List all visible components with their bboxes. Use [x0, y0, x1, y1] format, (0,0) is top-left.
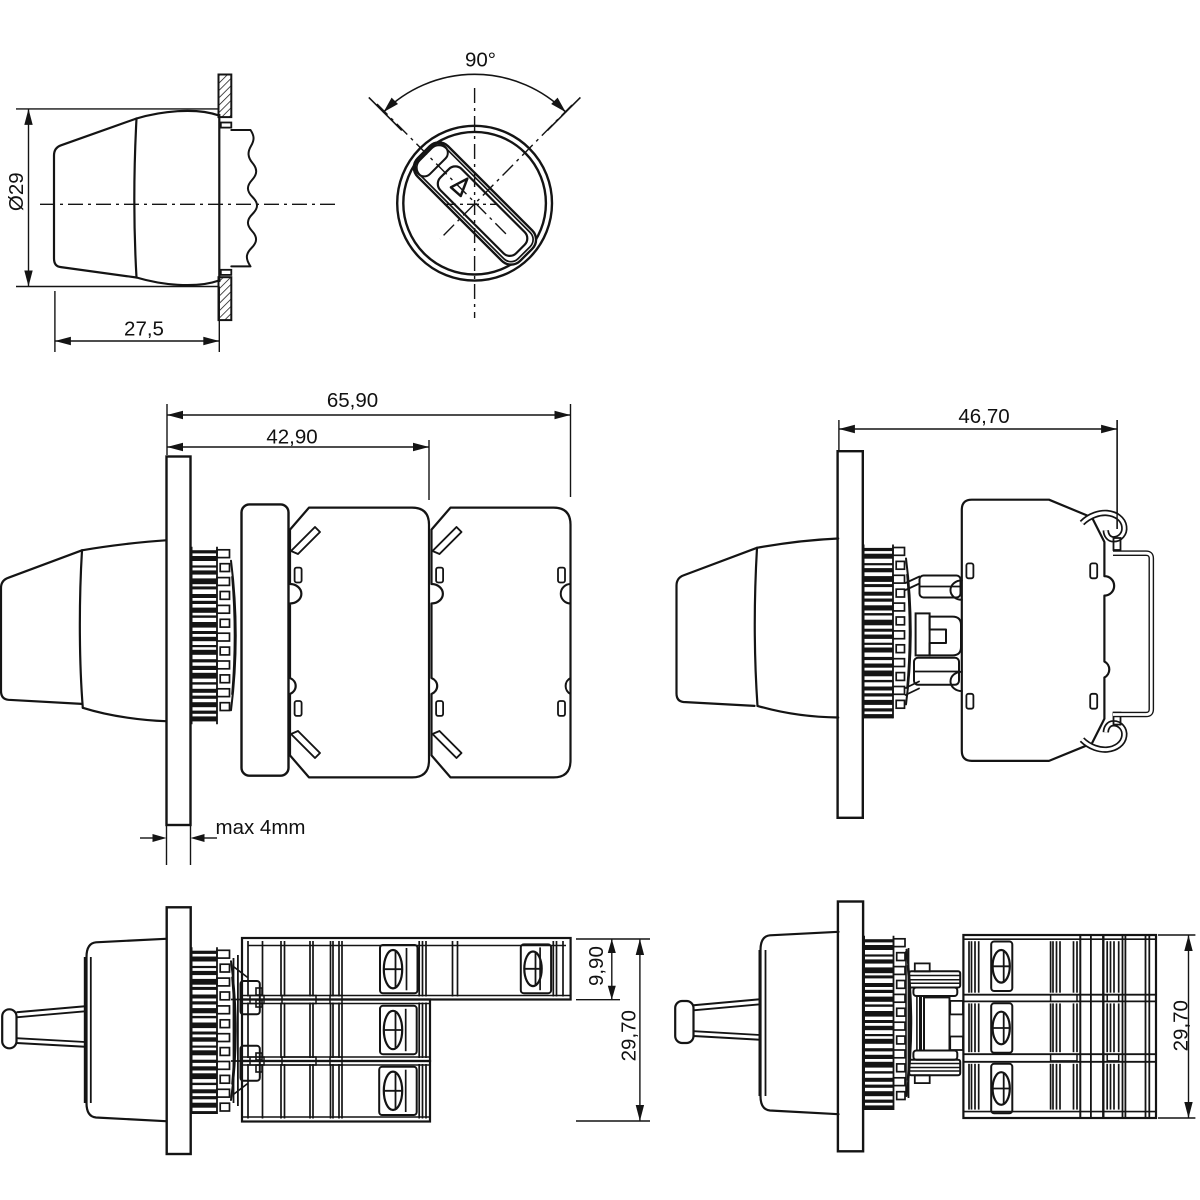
svg-text:9,90: 9,90	[585, 946, 608, 986]
svg-text:29,70: 29,70	[618, 1010, 641, 1061]
svg-text:max 4mm: max 4mm	[216, 816, 306, 839]
svg-text:65,90: 65,90	[327, 389, 378, 412]
svg-text:46,70: 46,70	[958, 405, 1009, 428]
svg-text:42,90: 42,90	[266, 426, 317, 449]
svg-text:Ø29: Ø29	[5, 172, 28, 211]
svg-text:27,5: 27,5	[124, 318, 164, 341]
svg-text:29,70: 29,70	[1169, 1000, 1192, 1051]
svg-text:90°: 90°	[465, 48, 496, 71]
